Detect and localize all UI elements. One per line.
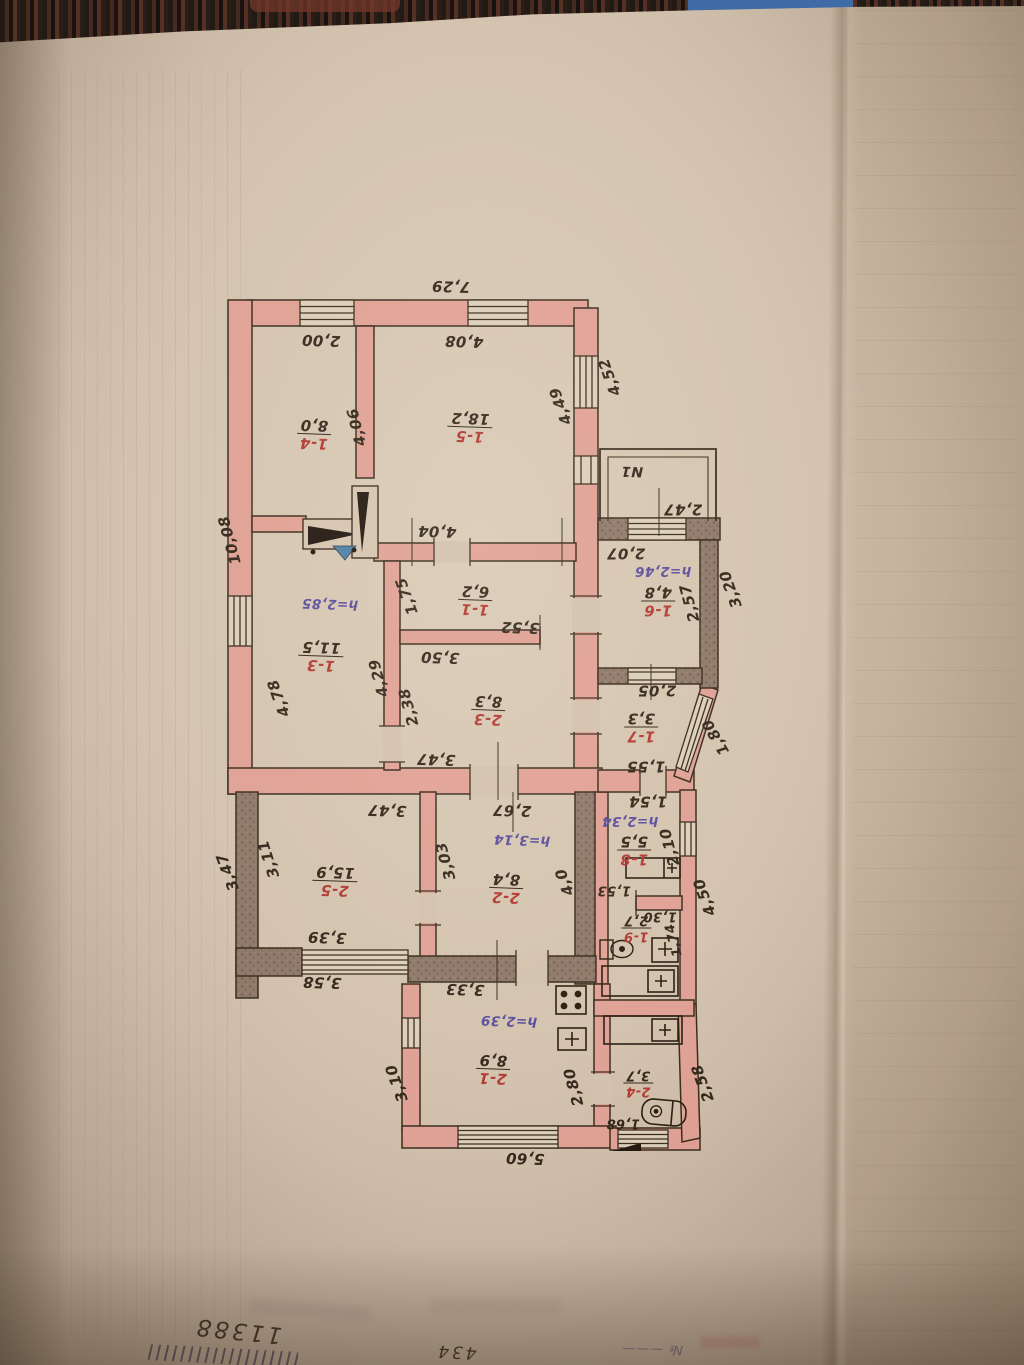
dim-total-top: 7,29 (431, 278, 470, 294)
room-1-4: 1-48,0 (296, 417, 331, 451)
inventory-number: 11388 (193, 1314, 283, 1346)
height-1-6: h=2,46 (635, 563, 692, 577)
room-1-5: 1-518,2 (447, 410, 493, 445)
dim-2-4-outer-right: 2,58 (689, 1062, 716, 1103)
stamp-number-sign: № ——— (621, 1342, 683, 1356)
case-number: 434 (435, 1341, 477, 1360)
height-1-8: h=2,34 (602, 813, 659, 827)
room-1-8: 1-85,5 (617, 834, 651, 867)
dim-right-outer-lower: 4,50 (691, 876, 718, 917)
room-1-1: 1-16,2 (457, 583, 492, 617)
room-1-7: 1-73,3 (624, 711, 658, 744)
room-1-6: 1-64,8 (641, 585, 675, 618)
plan-labels-layer: 7,292,004,084,524,494,0610,084,04N12,472… (0, 0, 1024, 1365)
dim-diagonal-wall: 1,80 (700, 717, 732, 758)
dim-1-1-width-bottom: 3,52 (500, 619, 539, 635)
dim-1-9-right: 1,74 (663, 922, 684, 958)
dim-2-2-left: 3,03 (434, 840, 458, 881)
dim-1-1-width-top: 4,04 (417, 523, 456, 539)
dim-2-2-right: 4,0 (553, 866, 577, 897)
dim-1-1-left: 1,75 (393, 575, 420, 616)
height-2-1: h=2,39 (480, 1012, 537, 1027)
dim-1-3-left: 4,78 (265, 677, 292, 718)
dim-left-outer-lower: 3,47 (214, 851, 241, 892)
room-2-1: 2-18,9 (475, 1052, 510, 1086)
dim-1-6-depth: 2,57 (678, 582, 702, 623)
dim-1-4-width: 2,00 (301, 332, 340, 348)
dim-2-3-width-top: 3,50 (420, 649, 459, 665)
dim-1-5-width: 4,08 (444, 333, 483, 349)
dim-2-1-right: 2,80 (562, 1066, 586, 1107)
dim-bottom-outer: 5,60 (505, 1150, 544, 1166)
dim-1-4-depth: 4,06 (345, 406, 369, 447)
dim-left-outer-upper: 10,08 (216, 514, 243, 566)
paper-sheet: 7,292,004,084,524,494,0610,084,04N12,472… (0, 0, 1024, 1365)
height-1-3: h=2,85 (301, 595, 358, 610)
room-2-2: 2-28,4 (488, 871, 523, 905)
dim-2-5-width-top: 3,47 (367, 802, 406, 818)
dim-1-9-top: 1,53 (597, 884, 631, 897)
dim-2-1-left: 3,10 (383, 1062, 410, 1103)
fabric-red-stripe (250, 0, 400, 12)
dim-2-1-top: 3,33 (445, 981, 484, 997)
room-2-4: 2-43,7 (623, 1069, 654, 1098)
dim-veranda-width: 2,47 (664, 502, 703, 517)
dim-2-4-window: 1,68 (606, 1117, 640, 1130)
height-2-2: h=3,14 (493, 831, 550, 846)
veranda-label: N1 (621, 464, 644, 479)
room-2-3: 2-38,3 (470, 693, 505, 727)
room-2-5: 2-515,9 (312, 864, 358, 899)
dim-2-2-width-top: 2,67 (492, 802, 531, 818)
dim-right-outer-upper: 4,52 (596, 356, 623, 397)
dim-1-6-window: 2,07 (607, 546, 646, 561)
dim-1-8-top: 1,54 (629, 794, 668, 809)
dim-2-3-left: 2,38 (397, 686, 421, 727)
dim-1-6-bottom-window: 2,05 (638, 683, 677, 698)
dim-1-3-right: 4,29 (367, 657, 391, 698)
room-1-3: 1-311,5 (298, 639, 344, 674)
dim-2-5-window: 3,39 (307, 929, 346, 945)
dim-2-3-width-bottom: 3,47 (416, 751, 455, 767)
dim-annex-outer-right: 3,20 (717, 568, 744, 609)
dim-2-5-outer-bottom: 3,58 (302, 974, 341, 990)
dim-2-5-left: 3,11 (256, 838, 282, 879)
dim-1-8-right: 2,10 (658, 826, 682, 867)
dim-1-7-bottom: 1,55 (627, 759, 666, 774)
room-1-9: 1-92,7 (621, 914, 652, 943)
photo-of-floor-plan-page: 7,292,004,084,524,494,0610,084,04N12,472… (0, 0, 1024, 1365)
dim-1-5-depth: 4,49 (547, 385, 574, 426)
